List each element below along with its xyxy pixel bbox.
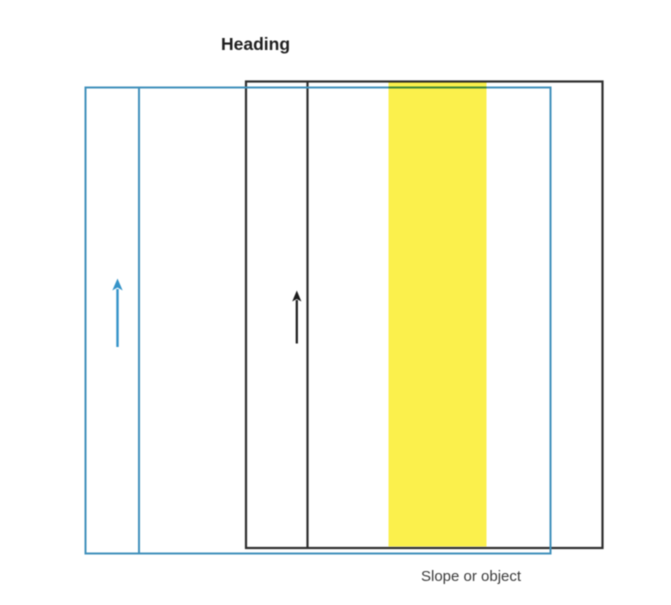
svg-text:Slope or object: Slope or object — [421, 568, 522, 585]
svg-text:Heading: Heading — [221, 34, 290, 54]
